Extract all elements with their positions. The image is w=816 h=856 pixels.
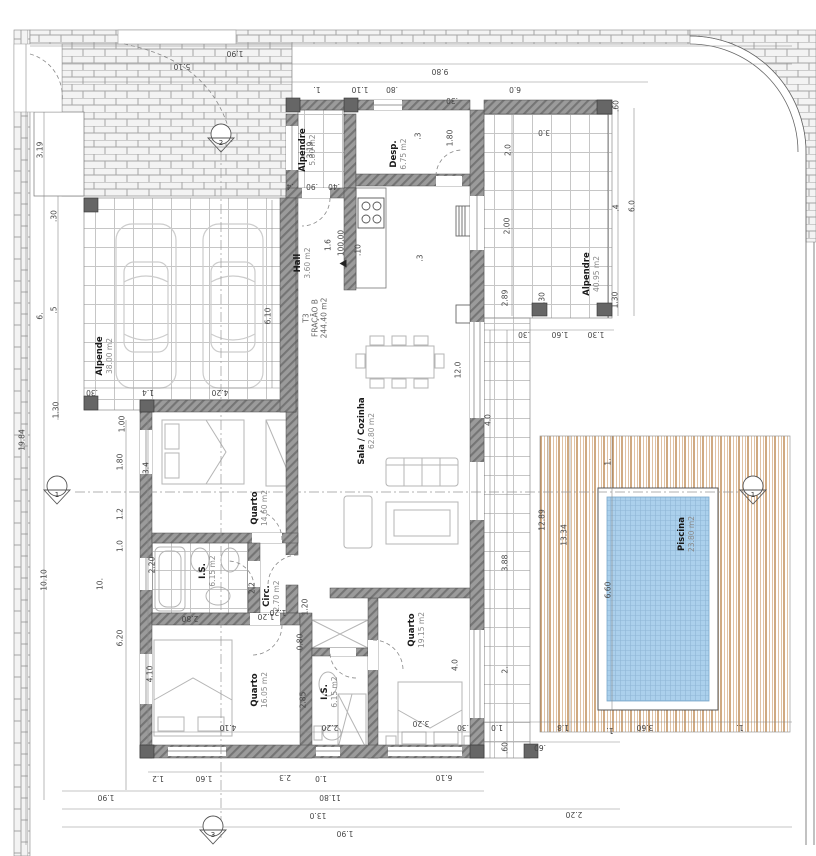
dim-label: 6. <box>36 312 44 319</box>
dim-label: .10 <box>354 244 362 256</box>
dim-label: 4.0 <box>451 659 459 671</box>
dim-label: 1.4 <box>142 388 154 396</box>
section-marker-left-number: 1 <box>55 491 59 499</box>
dim-label: 1. <box>736 723 743 731</box>
dim-label: 6.0 <box>628 200 636 212</box>
dim-label: .30 <box>446 96 458 104</box>
carport-area <box>84 198 294 410</box>
level-value: 100.00 <box>337 230 345 256</box>
room-label-piscina: Piscina 23.80 m2 <box>678 516 696 552</box>
room-label-hall: Hall 3.60 m2 <box>294 247 312 278</box>
dim-label: 4.0 <box>484 414 492 426</box>
dim-label: 1.90 <box>227 49 244 57</box>
dim-label: 5.10 <box>174 62 191 70</box>
room-label-is2: I.S. 6.15 m2 <box>321 676 339 707</box>
dim-label: .30 <box>518 330 530 338</box>
dim-label: .4 <box>286 182 293 190</box>
dim-label: 1.80 <box>116 454 124 471</box>
room-label-sala: Sala / Cozinha 62.80 m2 <box>358 397 376 464</box>
dim-label: 3.19 <box>36 142 44 159</box>
dim-label: 2.0 <box>504 144 512 156</box>
dim-label: 1.60 <box>196 774 213 782</box>
dim-label: 3.60 <box>637 723 654 731</box>
dim-label: 1.30 <box>588 330 605 338</box>
dim-label: 1.6 <box>324 239 332 251</box>
alpendre-south-wall <box>484 100 612 114</box>
room-label-quarto1: Quarto 14.60 m2 <box>251 490 269 526</box>
carport-east-wall <box>280 198 296 412</box>
dim-label: .30 <box>538 292 546 304</box>
room-area: 16.05 m2 <box>261 672 270 708</box>
dim-label: 13.0 <box>310 811 327 819</box>
dim-label: 1.8 <box>557 723 569 731</box>
kitchen-counter <box>356 188 386 288</box>
dim-label: 1.20 <box>270 608 287 616</box>
section-marker-left: 1 <box>44 476 70 504</box>
dim-label: 2.80 <box>182 614 199 622</box>
dim-label: 1.0 <box>116 540 124 552</box>
dim-label: 1. <box>604 458 612 465</box>
dim-label: .90 <box>306 182 318 190</box>
dim-label: 1.30 <box>611 292 619 309</box>
room-label-alpendre-south: Alpendre 40.95 m2 <box>583 252 601 295</box>
dim-label: 2.3 <box>279 773 291 781</box>
fraction-annotation: T3 FRAÇÃO B 244.40 m2 <box>302 298 329 339</box>
dim-label: 0.80 <box>296 634 304 651</box>
dim-label: 9.80 <box>432 67 449 75</box>
dim-label: 6.10 <box>264 308 272 325</box>
dim-label: 1.2 <box>152 774 164 782</box>
dim-label: 11.80 <box>319 793 340 801</box>
dim-label: 1.60 <box>552 330 569 338</box>
section-marker-bottom: 3 <box>200 816 226 844</box>
section-marker-right-number: 1 <box>751 491 755 499</box>
dim-label: 3.4 <box>142 462 150 474</box>
dim-label: 1.80 <box>446 130 454 147</box>
room-area: 38.00 m2 <box>106 336 115 375</box>
room-area: 6.15 m2 <box>331 676 340 707</box>
dim-label: 2.85 <box>299 692 307 709</box>
dim-label: 2.20 <box>148 557 156 574</box>
dim-label: 1.90 <box>98 793 115 801</box>
room-label-quarto3: Quarto 19.15 m2 <box>408 612 426 648</box>
dim-label: 6.10 <box>436 773 453 781</box>
level-marker-icon <box>336 260 347 268</box>
dim-label: .30 <box>457 723 469 731</box>
dim-label: 1.2 <box>116 508 124 520</box>
room-label-is1: I.S. 6.15 m2 <box>199 555 217 586</box>
room-label-carport: Alpende 38.00 m2 <box>96 336 114 375</box>
fraction-type: T3 <box>302 298 311 339</box>
fraction-name: FRAÇÃO B <box>311 298 320 339</box>
dim-label: 2. <box>501 666 509 673</box>
room-area: 3.60 m2 <box>304 247 313 278</box>
dim-label: 12.89 <box>538 509 546 530</box>
room-area: 6.15 m2 <box>209 555 218 586</box>
dim-label: 12.0 <box>454 362 462 379</box>
dim-label: 6.60 <box>604 582 612 599</box>
fraction-area: 244.40 m2 <box>320 298 329 339</box>
dim-label: 1.0 <box>491 723 503 731</box>
room-area: 14.60 m2 <box>261 490 270 526</box>
dim-label: 2.00 <box>503 218 511 235</box>
section-marker-bottom-number: 3 <box>211 831 215 839</box>
dim-label: 13.34 <box>560 524 568 545</box>
section-marker-top-number: 2 <box>219 139 223 147</box>
dim-label: 4.10 <box>220 723 237 731</box>
dim-label: 1.20 <box>301 599 309 616</box>
dim-label: .3 <box>414 132 422 139</box>
room-area: 40.95 m2 <box>593 252 602 295</box>
dim-label: .40 <box>328 182 340 190</box>
dim-label: .80 <box>386 85 398 93</box>
dim-label: 3.88 <box>501 555 509 572</box>
dim-label: .30 <box>50 210 58 222</box>
dim-label: 4.10 <box>146 666 154 683</box>
dim-label: 2.20 <box>322 723 339 731</box>
dim-label: 2.20 <box>566 810 583 818</box>
dim-label: .30 <box>86 388 98 396</box>
dim-label: 10. <box>96 578 104 590</box>
room-label-desp: Desp. 6.75 m2 <box>390 138 408 169</box>
dim-label: 1.10 <box>352 85 369 93</box>
room-area: 23.80 m2 <box>688 516 697 552</box>
dim-label: 1.30 <box>52 402 60 419</box>
dim-label: 1. <box>606 726 613 734</box>
room-area: 62.80 m2 <box>368 397 377 464</box>
room-area: 19.15 m2 <box>418 612 427 648</box>
room-area: 6.75 m2 <box>400 138 409 169</box>
dim-label: .60 <box>501 742 509 754</box>
dim-label: 1. <box>313 85 320 93</box>
dim-label: .60 <box>612 100 620 112</box>
dim-label: 1.0 <box>315 774 327 782</box>
dim-label: 2.2 <box>248 582 256 594</box>
dim-label: 3.19 <box>306 142 314 159</box>
dim-label: .3 <box>416 254 424 261</box>
dim-label: 10.10 <box>40 569 48 590</box>
dim-label: 6.0 <box>509 85 521 93</box>
dim-label: .4 <box>612 204 620 211</box>
room-label-quarto2: Quarto 16.05 m2 <box>251 672 269 708</box>
vehicle-gate <box>118 30 236 44</box>
dim-label: .5 <box>50 306 58 313</box>
dim-label: 19.84 <box>18 429 26 450</box>
dim-label: 4.20 <box>212 388 229 396</box>
dim-label: 2.89 <box>501 290 509 307</box>
dim-label: 6.20 <box>116 630 124 647</box>
floor-plan-canvas: 1 1 2 3 Alpendre 5.80 m2 Desp. 6.75 m2 H… <box>0 0 816 856</box>
dim-label: 3.0 <box>538 128 550 136</box>
dim-label: .60 <box>534 743 546 751</box>
dim-label: 1.00 <box>118 416 126 433</box>
dim-label: 3.20 <box>413 719 430 727</box>
dim-label: 1.90 <box>337 829 354 837</box>
driveway-paving <box>14 30 292 196</box>
